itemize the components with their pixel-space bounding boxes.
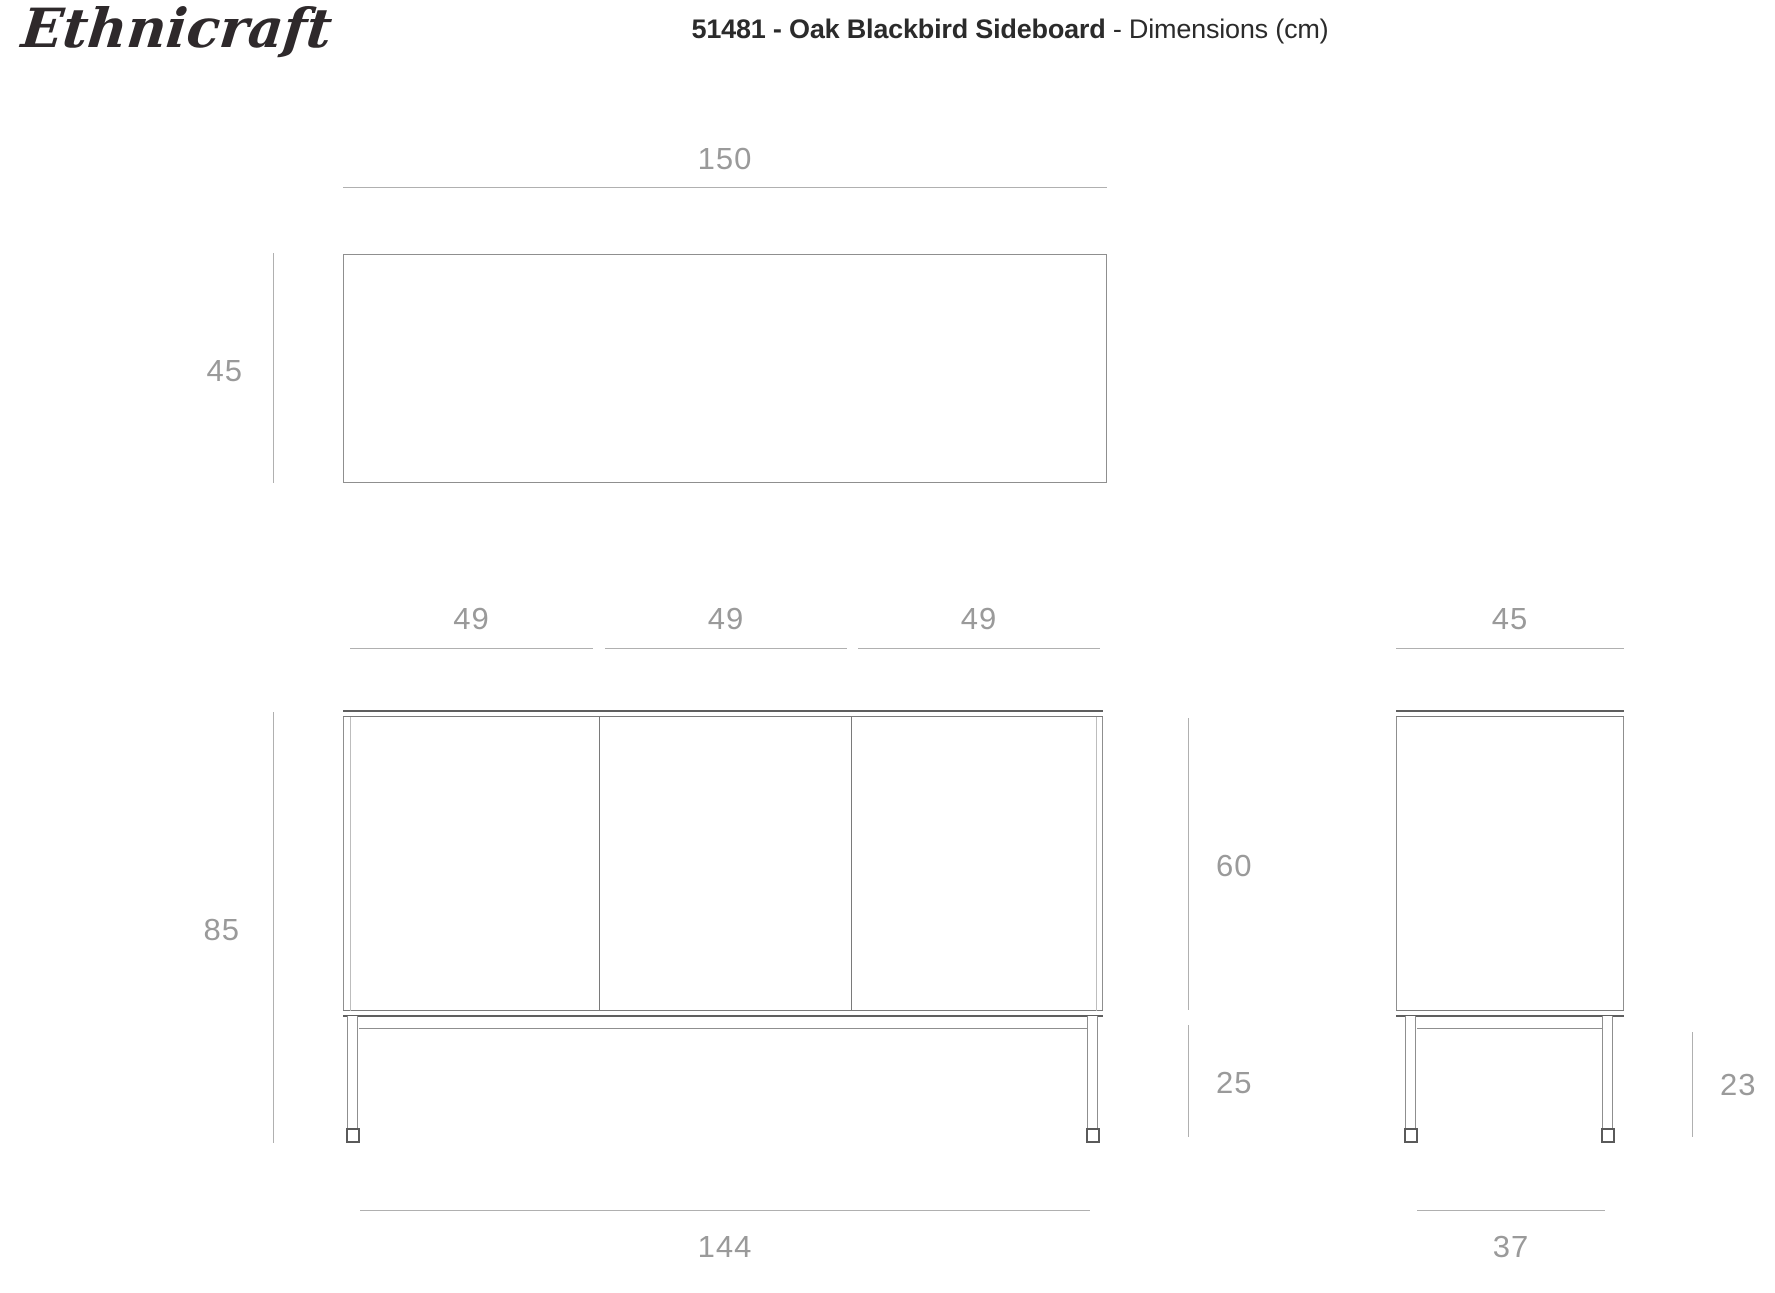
front-view-outline (343, 710, 1103, 1017)
dim-label-base-depth: 37 (1417, 1231, 1605, 1262)
dim-line-base-width (360, 1210, 1090, 1211)
side-front-foot (1404, 1128, 1418, 1143)
side-back-leg (1602, 1016, 1613, 1142)
brand-logo: Ethnicraft (19, 0, 335, 60)
side-apron-line (1417, 1028, 1602, 1029)
dim-line-total-height (273, 712, 274, 1143)
page-title: 51481 - Oak Blackbird Sideboard - Dimens… (640, 14, 1380, 45)
front-apron-line (359, 1028, 1087, 1029)
dim-label-front-leg-height: 25 (1216, 1067, 1252, 1098)
front-left-foot (346, 1128, 360, 1143)
dim-label-side-leg-height: 23 (1720, 1069, 1756, 1100)
dim-line-side-leg-height (1692, 1032, 1693, 1137)
dim-label-top-width: 150 (343, 143, 1107, 174)
door-divider-2 (851, 717, 852, 1011)
dim-line-door-1 (350, 648, 593, 649)
dim-line-side-depth (1396, 648, 1624, 649)
dim-line-body-height (1188, 718, 1189, 1010)
side-view-outline (1396, 710, 1624, 1017)
dimension-sheet: Ethnicraft 51481 - Oak Blackbird Sideboa… (0, 0, 1775, 1293)
dim-line-top-depth (273, 253, 274, 483)
front-bottom-panel (343, 1010, 1103, 1017)
title-dimensions-suffix: - Dimensions (cm) (1106, 14, 1329, 44)
front-right-leg (1087, 1016, 1098, 1142)
front-top-panel (343, 710, 1103, 717)
front-right-foot (1086, 1128, 1100, 1143)
dim-label-door-3: 49 (858, 603, 1100, 634)
dim-label-total-height: 85 (148, 914, 240, 945)
front-right-frame-line (1096, 717, 1097, 1011)
side-back-foot (1601, 1128, 1615, 1143)
dim-line-door-3 (858, 648, 1100, 649)
side-front-leg (1405, 1016, 1416, 1142)
dim-line-front-leg-height (1188, 1025, 1189, 1137)
dim-label-side-depth: 45 (1396, 603, 1624, 634)
dim-label-door-2: 49 (605, 603, 847, 634)
dim-line-door-2 (605, 648, 847, 649)
side-bottom-panel (1396, 1010, 1624, 1017)
front-left-frame-line (350, 717, 351, 1011)
front-left-leg (347, 1016, 358, 1142)
product-code-name: 51481 - Oak Blackbird Sideboard (692, 14, 1106, 44)
dim-line-top-width (343, 187, 1107, 188)
dim-label-body-height: 60 (1216, 850, 1252, 881)
dim-label-top-depth: 45 (148, 355, 243, 386)
dim-line-base-depth (1417, 1210, 1605, 1211)
top-view-outline (343, 254, 1107, 483)
dim-label-door-1: 49 (350, 603, 593, 634)
door-divider-1 (599, 717, 600, 1011)
dim-label-base-width: 144 (575, 1231, 875, 1262)
side-top-panel (1396, 710, 1624, 717)
